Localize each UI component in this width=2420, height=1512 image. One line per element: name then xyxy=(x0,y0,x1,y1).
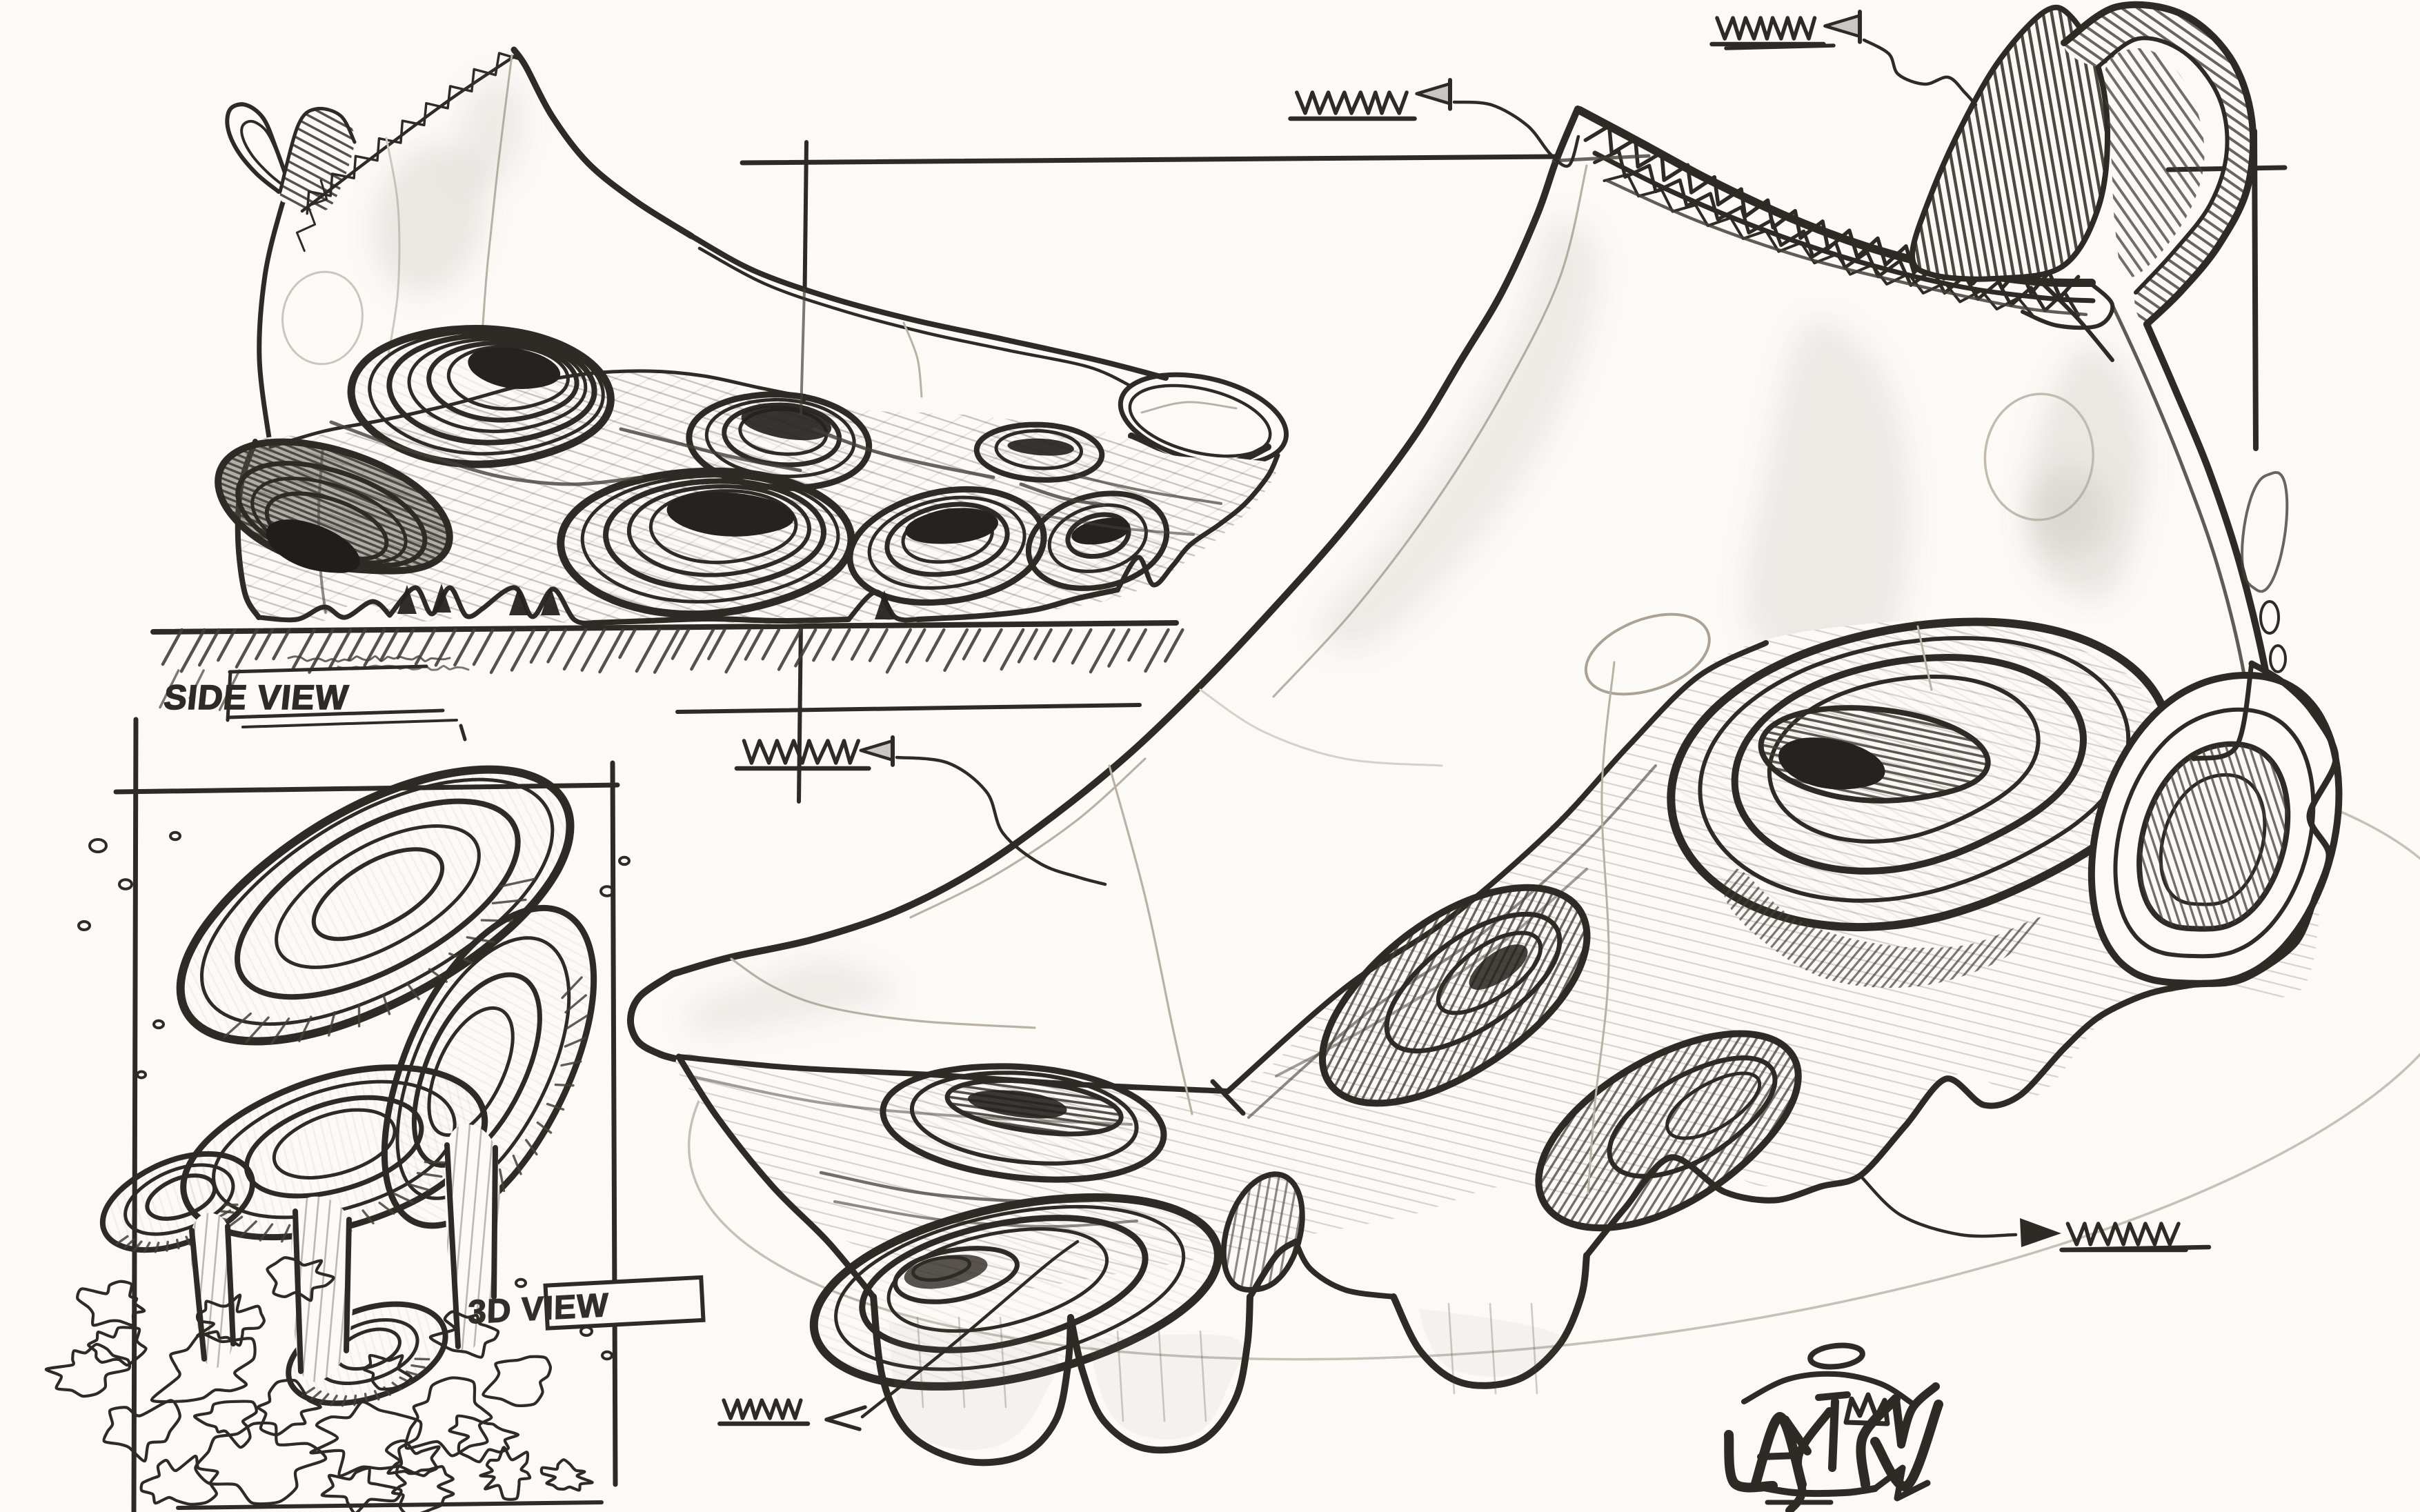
svg-text:3D VIEW: 3D VIEW xyxy=(468,1287,609,1331)
svg-text:SIDE VIEW: SIDE VIEW xyxy=(162,678,350,717)
